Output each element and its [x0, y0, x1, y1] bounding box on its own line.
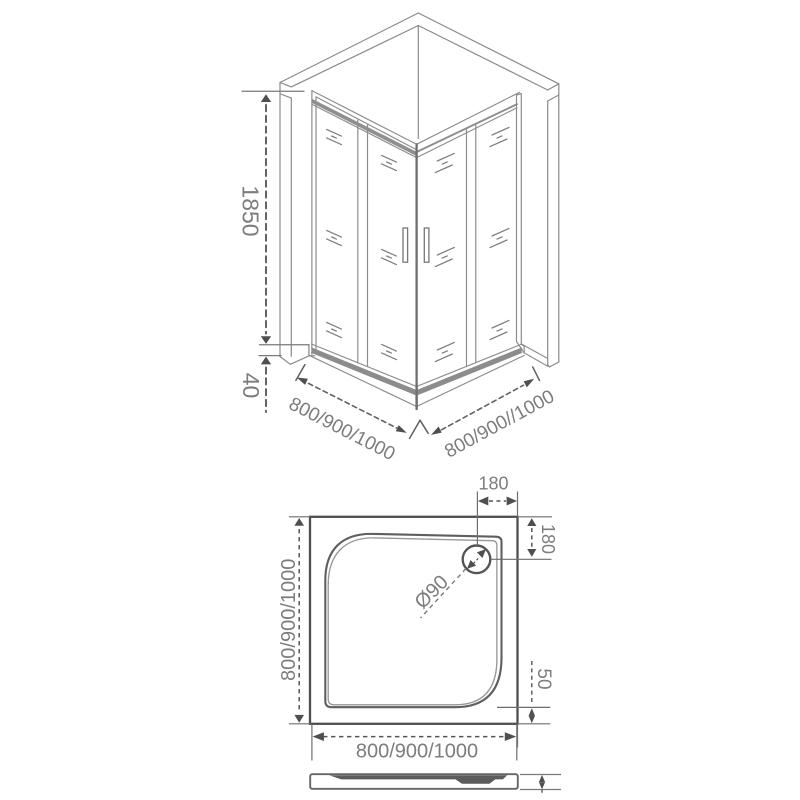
- svg-text:800/900/1000: 800/900/1000: [356, 741, 478, 763]
- svg-text:Ø90: Ø90: [411, 571, 453, 613]
- svg-text:180: 180: [478, 474, 508, 494]
- svg-text:180: 180: [538, 524, 558, 554]
- svg-text:40: 40: [238, 373, 264, 399]
- svg-text:1850: 1850: [238, 185, 264, 236]
- svg-text:800/900/1000: 800/900/1000: [285, 394, 398, 465]
- svg-text:50: 50: [533, 668, 554, 689]
- svg-text:800/900/1000: 800/900/1000: [278, 559, 300, 681]
